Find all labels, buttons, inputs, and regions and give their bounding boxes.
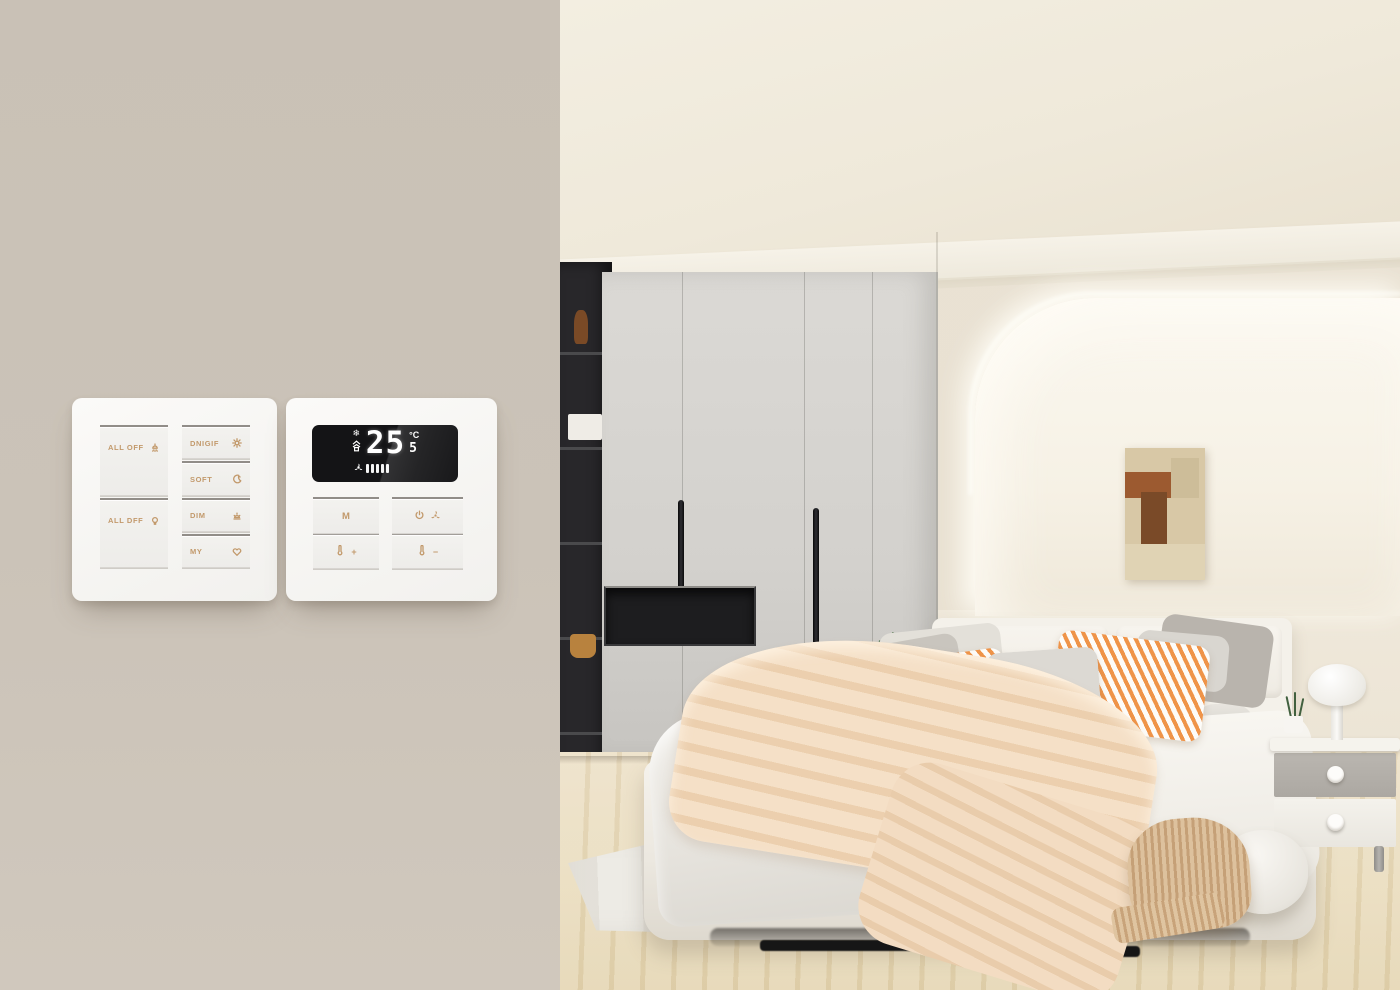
- button-label: DIM: [190, 511, 206, 520]
- scene-switch-panel: ALL OFF ALL DFF DNIGIF: [72, 398, 277, 601]
- temp-down-button[interactable]: −: [392, 534, 463, 570]
- bedroom-photo: [560, 0, 1400, 990]
- ceiling: [560, 0, 1400, 262]
- temp-up-icon: [335, 544, 346, 559]
- room-corner-line: [936, 232, 938, 652]
- artwork-block: [1171, 458, 1199, 498]
- wall-artwork: [1125, 448, 1205, 580]
- dimmer-icon: [232, 511, 242, 521]
- mode-button[interactable]: M: [313, 497, 379, 534]
- shelf-box: [568, 414, 602, 440]
- artwork-block: [1125, 544, 1205, 580]
- power-fan-button[interactable]: [392, 497, 463, 534]
- mode-button-label: M: [342, 511, 350, 522]
- switch-button-dim[interactable]: DIM: [182, 498, 250, 532]
- thermostat-panel: ❄ 25 °C 5: [286, 398, 497, 601]
- thermostat-display: ❄ 25 °C 5: [312, 425, 458, 482]
- switch-button-soft[interactable]: SOFT: [182, 461, 250, 495]
- drawer-knob: [1327, 766, 1344, 783]
- table-lamp: [1308, 664, 1366, 706]
- plant-pot: [1284, 716, 1303, 733]
- pendant-light-icon: [150, 443, 160, 453]
- fan-icon: [430, 509, 441, 524]
- button-label: ALL DFF: [108, 516, 143, 525]
- heart-icon: [232, 547, 242, 557]
- temp-down-icon: [417, 544, 428, 559]
- wardrobe-niche: [604, 586, 756, 646]
- shelf-handbag: [570, 634, 596, 658]
- switch-button-all-off-1[interactable]: ALL OFF: [100, 425, 168, 496]
- moon-icon: [232, 474, 242, 484]
- switch-button-my[interactable]: MY: [182, 534, 250, 568]
- switch-button-all-off-2[interactable]: ALL DFF: [100, 498, 168, 569]
- button-label: DNIGIF: [190, 439, 219, 448]
- display-glass-reflection: [312, 425, 458, 482]
- plus-sign: +: [351, 547, 356, 557]
- switch-left-column: ALL OFF ALL DFF: [100, 425, 168, 568]
- product-scene: ALL OFF ALL DFF DNIGIF: [0, 0, 1400, 990]
- table-lamp-stem: [1331, 702, 1343, 740]
- button-label: MY: [190, 547, 202, 556]
- button-label: SOFT: [190, 475, 212, 484]
- drawer-knob: [1327, 814, 1344, 831]
- temp-up-button[interactable]: +: [313, 534, 379, 570]
- switch-button-dnigif[interactable]: DNIGIF: [182, 425, 250, 459]
- minus-sign: −: [433, 547, 438, 557]
- bulb-icon: [150, 516, 160, 526]
- thermostat-right-rocker: −: [392, 497, 463, 569]
- sun-icon: [232, 438, 242, 448]
- wall-left: ALL OFF ALL DFF DNIGIF: [0, 0, 560, 990]
- button-label: ALL OFF: [108, 443, 144, 452]
- shelf-vase: [574, 310, 588, 344]
- thermostat-left-rocker: M +: [313, 497, 379, 569]
- switch-right-column: DNIGIF SOFT DIM: [182, 425, 250, 568]
- power-icon: [414, 509, 425, 524]
- nightstand-leg: [1374, 846, 1384, 872]
